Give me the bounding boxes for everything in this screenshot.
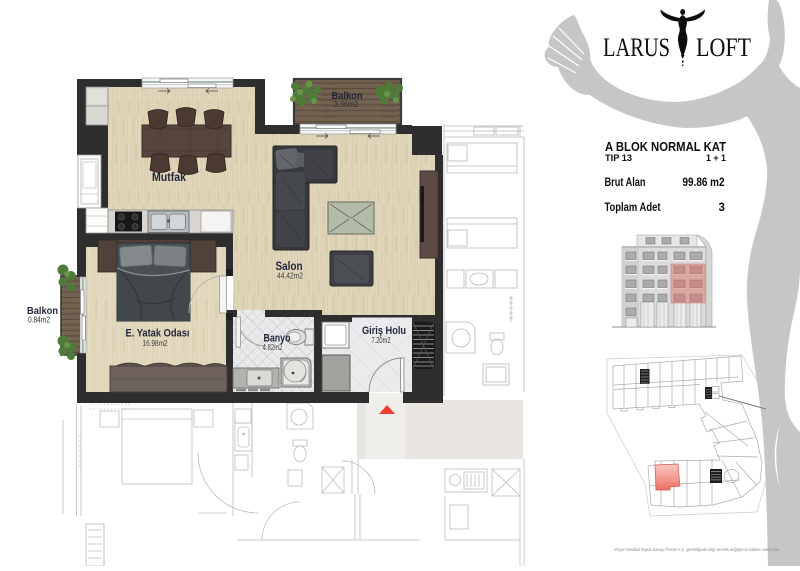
svg-text:16.98m2: 16.98m2 [143, 338, 168, 348]
svg-text:Brut Alan: Brut Alan [605, 177, 646, 189]
svg-text:LOFT: LOFT [696, 33, 751, 62]
svg-text:4.82m2: 4.82m2 [263, 342, 283, 352]
svg-text:1 + 1: 1 + 1 [706, 153, 727, 164]
svg-text:A BLOK NORMAL KAT: A BLOK NORMAL KAT [605, 140, 726, 154]
svg-text:3: 3 [719, 202, 725, 214]
svg-text:Toplam Adet: Toplam Adet [605, 202, 661, 214]
svg-text:99.86 m2: 99.86 m2 [683, 177, 725, 189]
svg-text:Mutfak: Mutfak [152, 172, 187, 184]
svg-text:44.42m2: 44.42m2 [277, 271, 303, 281]
svg-text:7.20m2: 7.20m2 [372, 335, 391, 345]
svg-text:TIP 13: TIP 13 [605, 153, 632, 164]
svg-text:LARUS: LARUS [603, 33, 670, 62]
svg-text:0.84m2: 0.84m2 [28, 315, 50, 325]
svg-text:Vizyon İstanbul İnşaat Sanayi: Vizyon İstanbul İnşaat Sanayi Ticaret A.… [614, 546, 780, 552]
svg-text:3.36m2: 3.36m2 [334, 99, 358, 109]
